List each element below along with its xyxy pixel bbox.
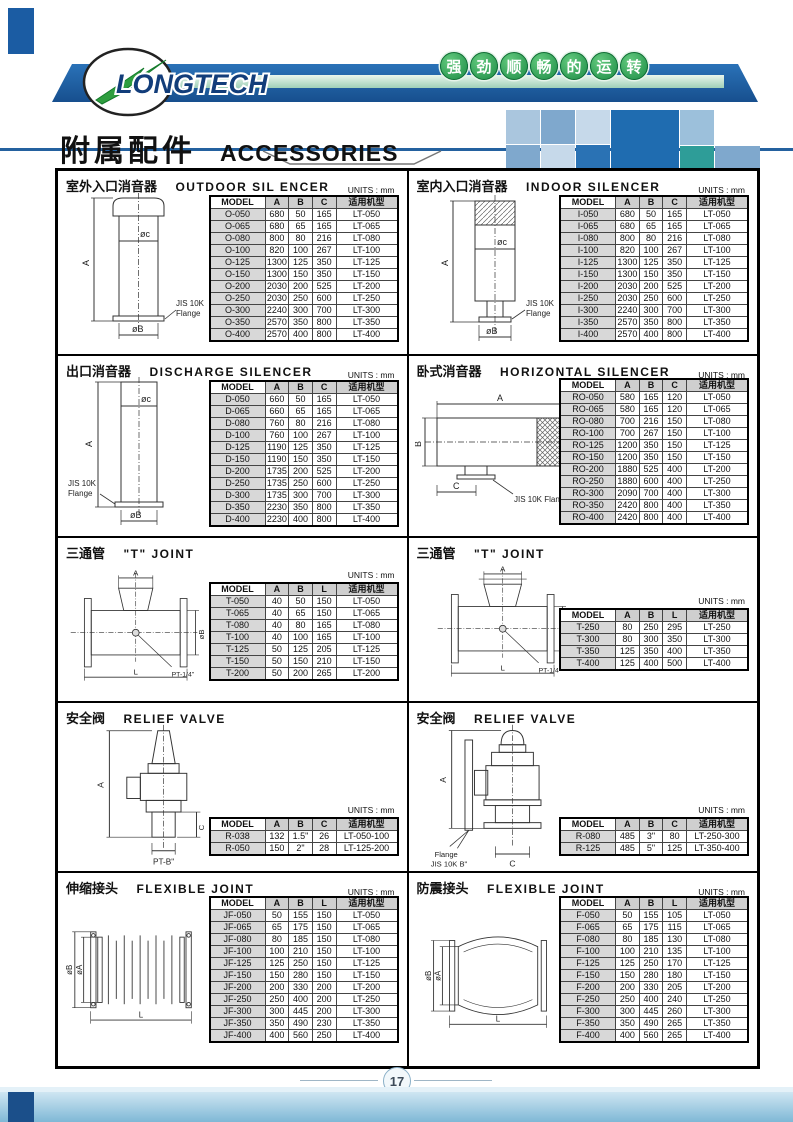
value-cell: LT-250 (687, 293, 749, 305)
column-header: MODEL (560, 818, 616, 831)
value-cell: 1300 (616, 257, 640, 269)
value-cell: 560 (289, 1030, 313, 1043)
horizontal-silencer-table: MODELABC适用机型RO-050580165120LT-050RO-0655… (559, 378, 749, 525)
value-cell: LT-050 (336, 596, 398, 608)
value-cell: 1300 (265, 257, 289, 269)
model-cell: D-300 (210, 490, 266, 502)
column-header: 适用机型 (336, 196, 398, 209)
model-cell: F-100 (560, 946, 616, 958)
anti-vibration-joint-diagram: øB øA L (423, 913, 573, 1043)
section-t-joint-large: 三通管 "T" JOINT UNITS : mm A øB L (408, 537, 759, 702)
value-cell: 265 (663, 1030, 687, 1043)
value-cell: LT-150 (336, 269, 398, 281)
table-row: O-100820100267LT-100 (210, 245, 398, 257)
value-cell: LT-300 (336, 1006, 398, 1018)
value-cell: LT-050 (687, 209, 749, 221)
value-cell: 580 (616, 404, 640, 416)
table-row: D-1501190150350LT-150 (210, 454, 398, 466)
model-cell: RO-300 (560, 488, 616, 500)
value-cell: LT-300 (687, 1006, 749, 1018)
flange-label: Flange (526, 309, 551, 318)
model-cell: O-350 (210, 317, 266, 329)
table-row: O-1501300150350LT-150 (210, 269, 398, 281)
value-cell: 150 (663, 416, 687, 428)
value-cell: 200 (265, 982, 289, 994)
value-cell: 2240 (265, 305, 289, 317)
footer-rule-right (414, 1080, 492, 1081)
model-cell: F-350 (560, 1018, 616, 1030)
corner-decor-bottom (8, 1092, 34, 1122)
model-cell: O-080 (210, 233, 266, 245)
value-cell: 350 (663, 634, 687, 646)
model-cell: O-125 (210, 257, 266, 269)
value-cell: LT-200 (336, 281, 398, 293)
value-cell: 165 (663, 221, 687, 233)
value-cell: LT-200 (336, 982, 398, 994)
value-cell: 300 (289, 305, 313, 317)
value-cell: 40 (265, 620, 289, 632)
value-cell: 180 (663, 970, 687, 982)
dim-c-label: øc (140, 229, 150, 239)
model-cell: JF-350 (210, 1018, 266, 1030)
value-cell: 800 (312, 329, 336, 342)
value-cell: LT-100 (687, 946, 749, 958)
model-cell: T-150 (210, 656, 266, 668)
value-cell: 40 (265, 608, 289, 620)
value-cell: 800 (265, 233, 289, 245)
model-cell: I-080 (560, 233, 616, 245)
section-title-en: INDOOR SILENCER (526, 180, 661, 194)
table-row: D-100760100267LT-100 (210, 430, 398, 442)
value-cell: 820 (265, 245, 289, 257)
value-cell: 65 (289, 406, 313, 418)
value-cell: 50 (265, 644, 289, 656)
value-cell: 80 (289, 620, 313, 632)
column-header: 适用机型 (687, 897, 749, 910)
model-cell: T-080 (210, 620, 266, 632)
value-cell: 200 (312, 982, 336, 994)
value-cell: 150 (265, 970, 289, 982)
value-cell: 660 (265, 406, 289, 418)
value-cell: 115 (663, 922, 687, 934)
model-cell: F-080 (560, 934, 616, 946)
column-header: A (616, 897, 640, 910)
value-cell: 260 (663, 1006, 687, 1018)
value-cell: 760 (265, 418, 289, 430)
value-cell: 400 (639, 994, 663, 1006)
value-cell: 80 (639, 233, 663, 245)
value-cell: LT-065 (336, 406, 398, 418)
section-title-en: "T" JOINT (123, 547, 194, 561)
value-cell: 150 (639, 269, 663, 281)
value-cell: LT-200 (687, 464, 749, 476)
value-cell: 185 (289, 934, 313, 946)
value-cell: 400 (265, 1030, 289, 1043)
value-cell: 250 (639, 293, 663, 305)
model-cell: JF-080 (210, 934, 266, 946)
outdoor-silencer-table: MODELABC适用机型O-05068050165LT-050O-0656806… (209, 195, 399, 342)
value-cell: 400 (663, 512, 687, 525)
value-cell: 205 (312, 644, 336, 656)
slogan-char: 的 (560, 52, 588, 80)
dim-l-label: L (495, 1015, 500, 1024)
model-cell: JF-125 (210, 958, 266, 970)
table-row: D-3502230350800LT-350 (210, 502, 398, 514)
value-cell: 2" (289, 843, 313, 856)
model-cell: D-250 (210, 478, 266, 490)
table-row: T-20050200265LT-200 (210, 668, 398, 681)
model-cell: T-200 (210, 668, 266, 681)
value-cell: 2230 (265, 514, 289, 527)
corner-decor-top (8, 8, 34, 54)
value-cell: 26 (312, 831, 336, 843)
value-cell: 150 (289, 269, 313, 281)
value-cell: 2030 (616, 281, 640, 293)
value-cell: LT-150 (336, 970, 398, 982)
section-title-en: FLEXIBLE JOINT (487, 882, 605, 896)
value-cell: 200 (289, 281, 313, 293)
table-row: JF-350350490230LT-350 (210, 1018, 398, 1030)
table-row: F-125125250170LT-125 (560, 958, 748, 970)
value-cell: 350 (312, 269, 336, 281)
value-cell: 1300 (616, 269, 640, 281)
value-cell: 660 (265, 394, 289, 406)
value-cell: 150 (265, 843, 289, 856)
value-cell: 3" (639, 831, 663, 843)
table-row: O-3502570350800LT-350 (210, 317, 398, 329)
slogan-char: 运 (590, 52, 618, 80)
value-cell: LT-250 (336, 478, 398, 490)
flange-label: Flange (434, 850, 457, 859)
value-cell: 265 (312, 668, 336, 681)
value-cell: 150 (312, 922, 336, 934)
section-title-zh: 卧式消音器 (417, 364, 482, 379)
model-cell: F-150 (560, 970, 616, 982)
value-cell: 1200 (616, 440, 640, 452)
table-row: I-1501300150350LT-150 (560, 269, 748, 281)
value-cell: 350 (265, 1018, 289, 1030)
discharge-silencer-table: MODELABC适用机型D-05066050165LT-050D-0656606… (209, 380, 399, 527)
column-header: MODEL (560, 609, 616, 622)
value-cell: 150 (312, 970, 336, 982)
section-title-zh: 三通管 (417, 546, 456, 561)
table-row: T-0504050150LT-050 (210, 596, 398, 608)
table-row: RO-1251200350150LT-125 (560, 440, 748, 452)
value-cell: 400 (663, 488, 687, 500)
value-cell: LT-125 (687, 257, 749, 269)
value-cell: 350 (616, 1018, 640, 1030)
section-t-joint-small: 三通管 "T" JOINT UNITS : mm A øB L PT-1/ (57, 537, 408, 702)
model-cell: RO-250 (560, 476, 616, 488)
units-label: UNITS : mm (348, 185, 395, 195)
model-cell: F-065 (560, 922, 616, 934)
value-cell: 250 (265, 994, 289, 1006)
value-cell: LT-050 (336, 394, 398, 406)
value-cell: 50 (289, 209, 313, 221)
value-cell: 330 (289, 982, 313, 994)
model-cell: O-250 (210, 293, 266, 305)
relief-valve-large-table: MODELABC适用机型R-0804853"80LT-250-300R-1254… (559, 817, 749, 856)
outdoor-silencer-diagram: A øc øB JIS 10K Flange (66, 191, 211, 343)
table-row: O-05068050165LT-050 (210, 209, 398, 221)
value-cell: 80 (616, 634, 640, 646)
section-indoor-silencer: 室内入口消音器 INDOOR SILENCER UNITS : mm A øc … (408, 170, 759, 355)
value-cell: 1200 (616, 452, 640, 464)
table-row: I-3002240300700LT-300 (560, 305, 748, 317)
units-label: UNITS : mm (698, 805, 745, 815)
column-header: MODEL (210, 583, 266, 596)
dim-a-label: A (81, 260, 91, 266)
value-cell: 680 (616, 221, 640, 233)
column-header: A (265, 196, 289, 209)
section-title-zh: 防震接头 (417, 881, 469, 896)
table-row: RO-100700267150LT-100 (560, 428, 748, 440)
value-cell: 1190 (265, 454, 289, 466)
table-row: I-3502570350800LT-350 (560, 317, 748, 329)
t-joint-diagram: A øB L PT-1/4" (429, 562, 579, 686)
column-header: A (265, 897, 289, 910)
value-cell: 40 (265, 596, 289, 608)
value-cell: LT-125 (336, 257, 398, 269)
table-row: I-08080080216LT-080 (560, 233, 748, 245)
value-cell: 700 (312, 490, 336, 502)
table-row: RO-3502420800400LT-350 (560, 500, 748, 512)
value-cell: 2090 (616, 488, 640, 500)
model-cell: O-065 (210, 221, 266, 233)
model-cell: T-400 (560, 658, 616, 671)
value-cell: LT-350 (687, 317, 749, 329)
dim-a-label: A (84, 441, 94, 447)
section-title-zh: 室内入口消音器 (417, 179, 508, 194)
model-cell: RO-200 (560, 464, 616, 476)
column-header: MODEL (560, 196, 616, 209)
table-row: T-12550125205LT-125 (210, 644, 398, 656)
value-cell: 330 (639, 982, 663, 994)
value-cell: 165 (639, 404, 663, 416)
value-cell: 525 (312, 281, 336, 293)
value-cell: 65 (289, 221, 313, 233)
model-cell: I-100 (560, 245, 616, 257)
section-horizontal-silencer: 卧式消音器 HORIZONTAL SILENCER UNITS : mm A B… (408, 355, 759, 537)
value-cell: 267 (312, 245, 336, 257)
value-cell: LT-200 (687, 982, 749, 994)
model-cell: O-050 (210, 209, 266, 221)
model-cell: RO-100 (560, 428, 616, 440)
value-cell: LT-100 (687, 245, 749, 257)
section-title-en: HORIZONTAL SILENCER (500, 365, 670, 379)
table-row: T-400125400500LT-400 (560, 658, 748, 671)
dim-c-label: C (197, 824, 206, 830)
table-row: RO-4002420800400LT-400 (560, 512, 748, 525)
model-cell: JF-200 (210, 982, 266, 994)
value-cell: 230 (312, 1018, 336, 1030)
table-row: R-0381321.5"26LT-050-100 (210, 831, 398, 843)
model-cell: JF-150 (210, 970, 266, 982)
value-cell: 50 (639, 209, 663, 221)
table-row: I-4002570400800LT-400 (560, 329, 748, 342)
column-header: 适用机型 (687, 379, 749, 392)
table-row: T-25080250295LT-250 (560, 622, 748, 634)
table-row: D-05066050165LT-050 (210, 394, 398, 406)
value-cell: 1880 (616, 476, 640, 488)
table-row: T-0654065150LT-065 (210, 608, 398, 620)
value-cell: 400 (663, 476, 687, 488)
value-cell: LT-350 (687, 500, 749, 512)
column-header: A (616, 379, 640, 392)
table-row: JF-250250400200LT-250 (210, 994, 398, 1006)
accessories-grid: 室外入口消音器 OUTDOOR SIL ENCER UNITS : mm A ø… (55, 168, 760, 1069)
section-relief-valve-large: 安全阀 RELIEF VALVE UNITS : mm (408, 702, 759, 872)
value-cell: LT-250 (687, 622, 749, 634)
model-cell: F-125 (560, 958, 616, 970)
model-cell: RO-065 (560, 404, 616, 416)
table-row: JF-125125250150LT-125 (210, 958, 398, 970)
model-cell: O-150 (210, 269, 266, 281)
value-cell: 200 (289, 466, 313, 478)
table-row: F-250250400240LT-250 (560, 994, 748, 1006)
value-cell: 65 (265, 922, 289, 934)
value-cell: LT-250 (336, 293, 398, 305)
table-row: F-400400560265LT-400 (560, 1030, 748, 1043)
value-cell: 150 (663, 428, 687, 440)
table-row: JF-150150280150LT-150 (210, 970, 398, 982)
value-cell: LT-350 (687, 646, 749, 658)
value-cell: LT-150 (687, 452, 749, 464)
model-cell: RO-150 (560, 452, 616, 464)
port-label: PT-1/4" (172, 671, 195, 678)
table-row: D-1251190125350LT-125 (210, 442, 398, 454)
value-cell: LT-250 (336, 994, 398, 1006)
model-cell: F-200 (560, 982, 616, 994)
column-header: B (639, 818, 663, 831)
flange-label: JIS 10K (176, 299, 205, 308)
value-cell: LT-400 (687, 1030, 749, 1043)
model-cell: RO-125 (560, 440, 616, 452)
column-header: B (639, 609, 663, 622)
model-cell: I-125 (560, 257, 616, 269)
value-cell: 400 (663, 500, 687, 512)
value-cell: 200 (312, 1006, 336, 1018)
value-cell: 2030 (265, 281, 289, 293)
dim-a-label: A (500, 564, 506, 573)
column-header: MODEL (560, 897, 616, 910)
model-cell: RO-350 (560, 500, 616, 512)
section-title-zh: 伸缩接头 (66, 881, 118, 896)
value-cell: 250 (289, 478, 313, 490)
table-row: T-10040100165LT-100 (210, 632, 398, 644)
value-cell: 1735 (265, 490, 289, 502)
value-cell: LT-100 (336, 946, 398, 958)
table-row: F-08080185130LT-080 (560, 934, 748, 946)
value-cell: LT-200 (687, 281, 749, 293)
dim-l-label: L (139, 1010, 144, 1019)
model-cell: O-200 (210, 281, 266, 293)
t-joint-small-table: MODELABL适用机型T-0504050150LT-050T-06540651… (209, 582, 399, 681)
column-header: B (639, 897, 663, 910)
value-cell: 2570 (265, 329, 289, 342)
value-cell: LT-400 (336, 1030, 398, 1043)
value-cell: 2420 (616, 500, 640, 512)
value-cell: 400 (289, 514, 313, 527)
column-header: B (289, 196, 313, 209)
value-cell: 525 (663, 281, 687, 293)
value-cell: 165 (639, 392, 663, 404)
value-cell: 165 (312, 620, 336, 632)
value-cell: 485 (616, 831, 640, 843)
value-cell: LT-125 (336, 958, 398, 970)
column-header: A (616, 609, 640, 622)
value-cell: 700 (616, 428, 640, 440)
table-row: I-06568065165LT-065 (560, 221, 748, 233)
value-cell: 265 (663, 1018, 687, 1030)
value-cell: LT-350-400 (687, 843, 749, 856)
column-header: C (663, 818, 687, 831)
model-cell: I-200 (560, 281, 616, 293)
value-cell: 800 (312, 502, 336, 514)
column-header: MODEL (210, 381, 266, 394)
indoor-silencer-diagram: A øc øB JIS 10K Flange (423, 193, 568, 345)
section-relief-valve-small: 安全阀 RELIEF VALVE UNITS : mm A C PT-B" (57, 702, 408, 872)
value-cell: 600 (663, 293, 687, 305)
dim-a-label: A (496, 393, 502, 403)
column-header: 适用机型 (336, 818, 398, 831)
model-cell: D-080 (210, 418, 266, 430)
table-row: RO-2001880525400LT-200 (560, 464, 748, 476)
value-cell: 1735 (265, 466, 289, 478)
discharge-silencer-diagram: A øc øB JIS 10K Flange (66, 376, 211, 528)
column-header: B (289, 583, 313, 596)
model-cell: D-100 (210, 430, 266, 442)
t-joint-large-table: MODELABL适用机型T-25080250295LT-250T-3008030… (559, 608, 749, 671)
value-cell: 200 (616, 982, 640, 994)
value-cell: 100 (639, 245, 663, 257)
model-cell: D-200 (210, 466, 266, 478)
value-cell: 150 (663, 440, 687, 452)
value-cell: LT-200 (336, 466, 398, 478)
table-row: RO-2501880600400LT-250 (560, 476, 748, 488)
value-cell: 800 (312, 514, 336, 527)
column-header: A (265, 381, 289, 394)
value-cell: 100 (265, 946, 289, 958)
model-cell: I-050 (560, 209, 616, 221)
model-cell: T-350 (560, 646, 616, 658)
value-cell: 50 (265, 656, 289, 668)
value-cell: LT-125 (336, 442, 398, 454)
value-cell: 350 (639, 317, 663, 329)
value-cell: 700 (639, 488, 663, 500)
value-cell: 1190 (265, 442, 289, 454)
value-cell: 250 (639, 958, 663, 970)
value-cell: 125 (663, 843, 687, 856)
model-cell: T-050 (210, 596, 266, 608)
value-cell: 300 (289, 490, 313, 502)
value-cell: 295 (663, 622, 687, 634)
dim-b-label: øB (66, 965, 74, 975)
value-cell: 700 (663, 305, 687, 317)
value-cell: 350 (663, 257, 687, 269)
value-cell: 760 (265, 430, 289, 442)
value-cell: LT-050 (687, 392, 749, 404)
value-cell: 2570 (616, 329, 640, 342)
model-cell: I-150 (560, 269, 616, 281)
indoor-silencer-table: MODELABC适用机型I-05068050165LT-050I-0656806… (559, 195, 749, 342)
value-cell: 680 (265, 221, 289, 233)
value-cell: 525 (312, 466, 336, 478)
flange-label: JIS 10K (526, 299, 555, 308)
value-cell: 80 (616, 934, 640, 946)
value-cell: LT-300 (687, 634, 749, 646)
table-row: JF-05050155150LT-050 (210, 910, 398, 922)
